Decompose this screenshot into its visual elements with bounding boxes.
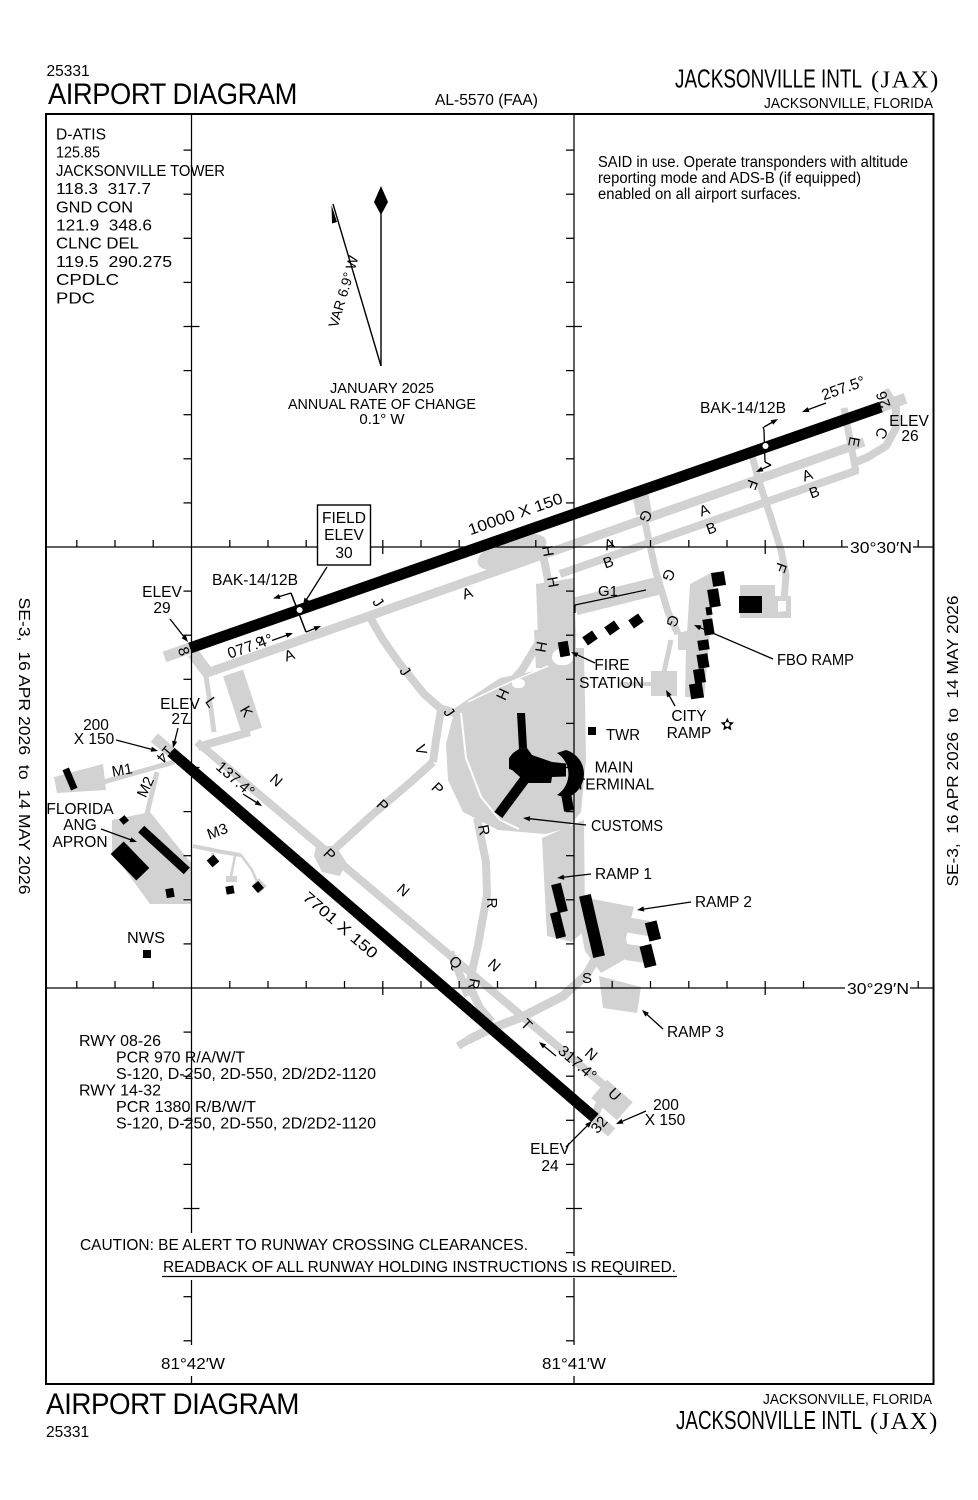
svg-text:TERMINAL: TERMINAL bbox=[576, 777, 655, 794]
svg-text:125.85: 125.85 bbox=[56, 145, 100, 162]
svg-text:JACKSONVILLE TOWER: JACKSONVILLE TOWER bbox=[56, 163, 225, 180]
svg-text:121.9 348.6: 121.9 348.6 bbox=[56, 218, 152, 235]
svg-text:RAMP 3: RAMP 3 bbox=[667, 1024, 724, 1041]
svg-text:30°30′N: 30°30′N bbox=[850, 540, 912, 557]
svg-text:H: H bbox=[538, 544, 557, 558]
svg-text:X 150: X 150 bbox=[645, 1112, 686, 1129]
svg-text:FIELD: FIELD bbox=[322, 510, 366, 527]
svg-text:26: 26 bbox=[901, 428, 918, 445]
svg-text:ELEV: ELEV bbox=[324, 527, 364, 544]
svg-text:PCR 970 R/A/W/T: PCR 970 R/A/W/T bbox=[116, 1050, 246, 1067]
svg-text:X 150: X 150 bbox=[74, 731, 115, 748]
svg-text:V: V bbox=[411, 743, 430, 757]
svg-text:A: A bbox=[282, 646, 297, 665]
svg-text:81°41′W: 81°41′W bbox=[542, 1356, 606, 1373]
svg-text:ANG: ANG bbox=[63, 817, 97, 834]
svg-text:PCR 1380 R/B/W/T: PCR 1380 R/B/W/T bbox=[116, 1099, 257, 1116]
svg-text:RAMP: RAMP bbox=[667, 725, 712, 742]
svg-text:FIRE: FIRE bbox=[594, 657, 629, 674]
svg-text:AIRPORT DIAGRAM: AIRPORT DIAGRAM bbox=[46, 1388, 299, 1421]
svg-text:118.3 317.7: 118.3 317.7 bbox=[56, 181, 151, 198]
svg-text:JACKSONVILLE INTL: JACKSONVILLE INTL bbox=[675, 64, 862, 94]
svg-text:N: N bbox=[484, 956, 503, 976]
svg-text:24: 24 bbox=[541, 1158, 559, 1175]
svg-text:CUSTOMS: CUSTOMS bbox=[591, 818, 663, 835]
svg-text:reporting mode and ADS-B (if e: reporting mode and ADS-B (if equipped) bbox=[598, 170, 861, 187]
svg-text:RWY 14-32: RWY 14-32 bbox=[79, 1083, 161, 1100]
svg-text:CAUTION: BE ALERT TO RUNWAY CR: CAUTION: BE ALERT TO RUNWAY CROSSING CLE… bbox=[80, 1237, 528, 1254]
svg-text:RAMP 1: RAMP 1 bbox=[595, 866, 652, 883]
svg-text:M3: M3 bbox=[205, 820, 230, 843]
svg-text:enabled on all airport surface: enabled on all airport surfaces. bbox=[598, 186, 801, 203]
svg-text:A: A bbox=[800, 466, 815, 485]
svg-text:APRON: APRON bbox=[52, 834, 107, 851]
svg-text:27: 27 bbox=[171, 711, 188, 728]
svg-text:81°42′W: 81°42′W bbox=[161, 1356, 225, 1373]
svg-text:M1: M1 bbox=[110, 760, 133, 780]
svg-text:S-120, D-250, 2D-550, 2D/2D2-1: S-120, D-250, 2D-550, 2D/2D2-1120 bbox=[116, 1066, 376, 1083]
svg-text:29: 29 bbox=[153, 600, 170, 617]
svg-text:JANUARY 2025: JANUARY 2025 bbox=[330, 380, 434, 397]
svg-text:R: R bbox=[474, 823, 493, 837]
svg-text:D-ATIS: D-ATIS bbox=[56, 127, 106, 144]
svg-text:C: C bbox=[871, 424, 891, 441]
svg-text:S: S bbox=[582, 970, 592, 987]
svg-text:RAMP 2: RAMP 2 bbox=[695, 894, 752, 911]
svg-text:P: P bbox=[428, 779, 447, 798]
svg-text:JACKSONVILLE INTL: JACKSONVILLE INTL bbox=[676, 1405, 862, 1435]
svg-text:BAK-14/12B: BAK-14/12B bbox=[212, 572, 298, 589]
svg-text:30°29′N: 30°29′N bbox=[847, 981, 909, 998]
svg-text:CITY: CITY bbox=[671, 708, 706, 725]
svg-text:(JAX): (JAX) bbox=[871, 67, 940, 94]
svg-text:257.5°: 257.5° bbox=[819, 373, 867, 404]
svg-text:FLORIDA: FLORIDA bbox=[46, 801, 114, 818]
svg-text:SAID in use. Operate transpond: SAID in use. Operate transponders with a… bbox=[598, 154, 908, 171]
svg-text:AIRPORT DIAGRAM: AIRPORT DIAGRAM bbox=[48, 78, 297, 111]
svg-text:AL-5570 (FAA): AL-5570 (FAA) bbox=[435, 92, 538, 109]
svg-text:CLNC DEL: CLNC DEL bbox=[56, 236, 139, 253]
svg-text:TWR: TWR bbox=[606, 727, 640, 744]
svg-text:119.5 290.275: 119.5 290.275 bbox=[56, 254, 172, 271]
svg-text:NWS: NWS bbox=[127, 930, 165, 947]
svg-text:STATION: STATION bbox=[579, 675, 644, 692]
svg-text:N: N bbox=[266, 771, 285, 791]
svg-text:N: N bbox=[393, 881, 412, 901]
svg-text:S-120, D-250, 2D-550, 2D/2D2-1: S-120, D-250, 2D-550, 2D/2D2-1120 bbox=[116, 1116, 376, 1133]
svg-text:A: A bbox=[697, 501, 712, 520]
svg-text:A: A bbox=[602, 535, 617, 554]
svg-text:RWY 08-26: RWY 08-26 bbox=[79, 1033, 161, 1050]
svg-text:0.1° W: 0.1° W bbox=[359, 411, 405, 428]
svg-text:SE-3, 16 APR 2026 to 14 MAY: SE-3, 16 APR 2026 to 14 MAY 2026 bbox=[15, 598, 32, 895]
svg-text:PDC: PDC bbox=[56, 290, 95, 307]
svg-text:SE-3, 16 APR 2026 to 14 MAY: SE-3, 16 APR 2026 to 14 MAY 2026 bbox=[945, 596, 962, 887]
svg-text:BAK-14/12B: BAK-14/12B bbox=[700, 400, 786, 417]
svg-text:JACKSONVILLE, FLORIDA: JACKSONVILLE, FLORIDA bbox=[764, 95, 933, 112]
svg-text:FBO RAMP: FBO RAMP bbox=[777, 652, 854, 669]
svg-text:ELEV: ELEV bbox=[142, 584, 182, 601]
svg-text:READBACK OF ALL RUNWAY HOLDING: READBACK OF ALL RUNWAY HOLDING INSTRUCTI… bbox=[163, 1259, 676, 1276]
svg-text:CPDLC: CPDLC bbox=[56, 272, 119, 289]
svg-text:(JAX): (JAX) bbox=[870, 1408, 939, 1435]
svg-text:ELEV: ELEV bbox=[530, 1141, 570, 1158]
svg-text:R: R bbox=[483, 898, 500, 909]
svg-text:VAR 6.9° W: VAR 6.9° W bbox=[325, 253, 362, 329]
svg-text:30: 30 bbox=[335, 545, 353, 562]
svg-text:25331: 25331 bbox=[46, 1424, 89, 1441]
svg-text:GND CON: GND CON bbox=[56, 199, 133, 216]
svg-text:MAIN: MAIN bbox=[595, 760, 634, 777]
svg-text:A: A bbox=[460, 584, 475, 603]
svg-text:G: G bbox=[662, 612, 682, 630]
